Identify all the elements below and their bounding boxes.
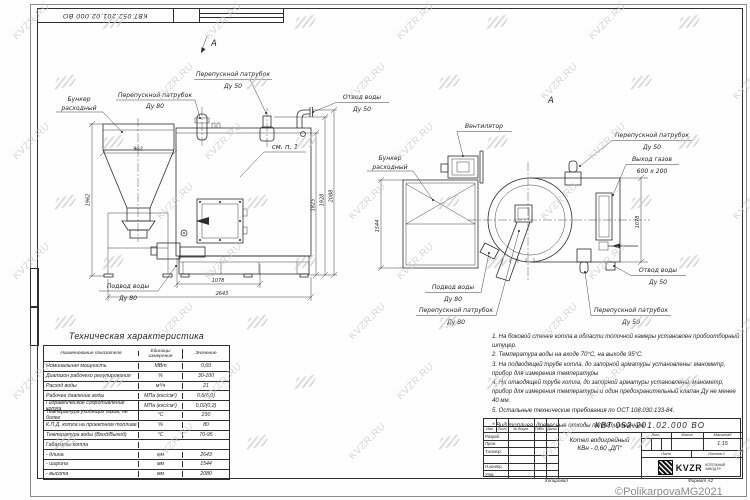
spec-cell: Диапазон рабочего регулирования (44, 373, 139, 379)
spec-cell: - ширина (44, 461, 139, 467)
label-side-bypass50-top-1: Перепускной патрубок (615, 131, 689, 139)
drawing-sheet: КВТ.052.201.02.000 ВО (0, 0, 750, 500)
front-view: 1962 902 1825 1928 2088 1078 2643 (56, 36, 389, 302)
format-label: Формат А2 (688, 478, 713, 483)
spec-cell: 2080 (183, 471, 229, 477)
spec-cell: °С (139, 432, 183, 438)
dim-1962: 1962 (86, 194, 92, 207)
notes-list: 1. На боковой стенке котла в области топ… (492, 333, 740, 415)
spec-row: Температура уходящих газов, не более°С23… (44, 411, 229, 421)
copied-label: Копировал (545, 478, 568, 483)
gas-outlet (596, 193, 612, 240)
spec-cell: 230 (183, 412, 229, 418)
company-name-2: ЗАВОД.РУ (705, 468, 725, 472)
spec-cell: 2643 (183, 452, 229, 458)
th-lit: Лит. (641, 433, 671, 437)
spec-cell: 21 (183, 383, 229, 389)
side-view: А (367, 96, 692, 326)
label-side-outlet-2: Ду 50 (648, 279, 667, 286)
spec-col-name: Наименование показателя (44, 351, 139, 356)
role-ncontrol: Н.контр. (485, 464, 503, 469)
kvzr-logo-icon (658, 460, 673, 475)
spec-cell: 0,60 (183, 363, 229, 369)
spec-row: Габариты котла (44, 440, 229, 450)
spec-cell: мм (139, 452, 183, 458)
sheets-label: Листов 1 (691, 452, 742, 456)
spec-cell: Температура уходящих газов, не более (44, 409, 139, 421)
spec-table: Техническая характеристика Наименование … (43, 331, 230, 480)
spec-cell: Расход воды (44, 383, 139, 389)
side-view-marker: А (547, 96, 554, 106)
dim-1928: 1928 (320, 194, 326, 207)
spec-col-value: Значение (183, 351, 229, 356)
dim-902: 902 (133, 147, 143, 153)
dim-1544: 1544 (375, 220, 381, 233)
view-arrow-label: А (210, 39, 217, 49)
label-side-bypass80-1: Перепускной патрубок (419, 306, 493, 314)
spec-row: - высотамм2080 (44, 470, 229, 479)
role-approved: Утв. (485, 472, 495, 477)
label-inlet-1: Подвод воды (107, 283, 150, 290)
spec-cell: - высота (44, 471, 139, 477)
dim-1078-side: 1078 (635, 216, 641, 229)
spec-table-rows: Номинальная мощностьМВт0,60Диапазон рабо… (44, 362, 229, 479)
company-name: КОТЕЛЬНЫЙ ЗАВОД.РУ (705, 464, 725, 471)
scale-value: 1:15 (703, 438, 742, 450)
spec-cell: МПа (кгс/см²) (139, 393, 183, 399)
spec-row: К.П.Д. котла на проектном топливе%80 (44, 421, 229, 431)
role-checked: Пров. (485, 441, 496, 446)
spec-cell: мм (139, 471, 183, 477)
spec-col-units: Единицы измерения (139, 349, 183, 359)
th-doc: № докум. (508, 427, 534, 431)
spec-cell: Габариты котла (44, 442, 139, 448)
spec-cell: МПа (кгс/см²) (139, 403, 183, 409)
th-izm: Изм. (484, 427, 496, 431)
company-logo: KVZR КОТЕЛЬНЫЙ ЗАВОД.РУ (641, 457, 742, 478)
side-bunker (403, 180, 478, 268)
spec-table-title: Техническая характеристика (43, 331, 230, 341)
spec-cell: МВт (139, 363, 183, 369)
note-item: 3. На подводящей трубе котла, до запорно… (492, 361, 740, 378)
auger-head (515, 205, 532, 222)
label-side-inlet-2: Ду 80 (443, 296, 462, 303)
label-side-bypass50-bot-1: Перепускной патрубок (594, 306, 668, 314)
label-fan: Вентилятор (465, 123, 503, 130)
product-name-2: КВн - 0,60 „ДП“ (558, 445, 641, 453)
spec-row: Расход водым³/ч21 (44, 382, 229, 392)
spec-table-grid: Наименование показателя Единицы измерени… (43, 345, 230, 480)
spec-col-units-2: измерения (139, 354, 182, 359)
front-nozzles (195, 107, 313, 141)
spec-cell: Рабочее давление воды (44, 393, 139, 399)
spec-cell: 30-100 (183, 373, 229, 379)
corner-stamp-number: КВТ.052.201.02.000 ВО (37, 8, 173, 22)
spec-row: Температура воды (Вход/Выход)°С70-95 (44, 431, 229, 441)
spec-cell: Температура воды (Вход/Выход) (44, 432, 139, 438)
label-side-bunker-2: расходный (371, 164, 407, 171)
spec-cell: °С (139, 412, 183, 418)
spec-cell: % (139, 373, 183, 379)
spec-cell: 0,02(0,2) (183, 403, 229, 409)
notes: 1. На боковой стенке котла в области топ… (492, 333, 740, 431)
label-bypass50-1: Перепускной патрубок (196, 70, 270, 78)
spec-row: Диапазон рабочего регулирования%30-100 (44, 372, 229, 382)
spec-cell: Номинальная мощность (44, 363, 139, 369)
spec-cell: 1544 (183, 461, 229, 467)
spec-table-header: Наименование показателя Единицы измерени… (44, 346, 229, 362)
spec-cell: 70-95 (183, 432, 229, 438)
kvzr-logo-text: KVZR (676, 463, 703, 473)
margin-stamp-1 (30, 268, 39, 308)
doc-number: КВТ.052.201.02.000 ВО (558, 419, 742, 432)
front-view-marker: А (201, 36, 217, 53)
spec-cell: % (139, 422, 183, 428)
spec-row: - ширинамм1544 (44, 460, 229, 470)
dim-2088: 2088 (329, 190, 335, 203)
th-scale: Масштаб (703, 433, 742, 437)
front-labels: Бункер расходный Перепускной патрубок Ду… (56, 70, 389, 302)
label-gas-1: Выход газов (632, 156, 672, 163)
label-side-inlet-1: Подвод воды (432, 284, 475, 291)
label-bypass80-1: Перепускной патрубок (118, 91, 192, 99)
label-bunker-1: Бункер (67, 96, 90, 103)
spec-cell: К.П.Д. котла на проектном топливе (44, 422, 139, 428)
label-outlet-1: Отвод воды (343, 94, 381, 101)
spec-cell: - длина (44, 452, 139, 458)
label-bypass80-2: Ду 80 (145, 103, 164, 110)
spec-row: - длинамм2643 (44, 450, 229, 460)
role-tcontrol: Т.контр. (485, 449, 502, 454)
product-name: Котел водогрейный КВн - 0,60 „ДП“ (558, 432, 641, 478)
front-hopper (103, 124, 205, 277)
th-sign: Подп. (534, 427, 546, 431)
label-side-outlet-1: Отвод воды (639, 267, 677, 274)
note-item: 2. Температура воды на входе 70°С, на вы… (492, 351, 740, 360)
label-side-bypass50-top-2: Ду 50 (642, 144, 661, 151)
spec-row: Номинальная мощностьМВт0,60 (44, 362, 229, 372)
product-name-1: Котел водогрейный (558, 437, 641, 445)
note-item: 4. На отводящей трубе котла, до запорной… (492, 379, 740, 405)
label-see-note: см. п. 1 (272, 143, 298, 151)
note-item: 5. Остальные технические требования по О… (492, 407, 740, 416)
fan (441, 151, 483, 183)
role-developed: Разраб. (485, 434, 500, 439)
dim-1825: 1825 (311, 199, 317, 212)
side-boiler-body (468, 161, 650, 281)
label-side-bypass50-bot-2: Ду 50 (621, 319, 640, 326)
label-outlet-2: Ду 50 (352, 106, 371, 113)
title-block: Изм. Лист № докум. Подп. Дата Разраб. Пр… (483, 418, 741, 477)
spec-cell: 80 (183, 422, 229, 428)
spec-cell: мм (139, 461, 183, 467)
th-list: Лист (496, 427, 508, 431)
label-bypass50-2: Ду 50 (223, 83, 242, 90)
margin-stamp-2 (30, 306, 39, 346)
label-side-bypass80-2: Ду 80 (446, 319, 465, 326)
sheet-label: Лист (641, 452, 691, 456)
label-side-bunker-1: Бункер (378, 155, 401, 162)
label-inlet-2: Ду 80 (118, 295, 137, 302)
spec-cell: м³/ч (139, 383, 183, 389)
dim-2643: 2643 (216, 291, 229, 297)
label-bunker-2: расходный (60, 105, 96, 112)
corner-stamp: КВТ.052.201.02.000 ВО (37, 8, 284, 23)
th-mass: Масса (671, 433, 703, 437)
th-date: Дата (546, 427, 558, 431)
note-item: 1. На боковой стенке котла в области топ… (492, 333, 740, 350)
spec-cell: 0,6(6,0) (183, 393, 229, 399)
label-gas-2: 600 х 200 (637, 168, 668, 175)
copyright: ©PolikarpovaMG2021 (615, 486, 723, 498)
side-dimensions: 1544 1078 (375, 175, 648, 271)
dim-1078: 1078 (212, 278, 225, 284)
